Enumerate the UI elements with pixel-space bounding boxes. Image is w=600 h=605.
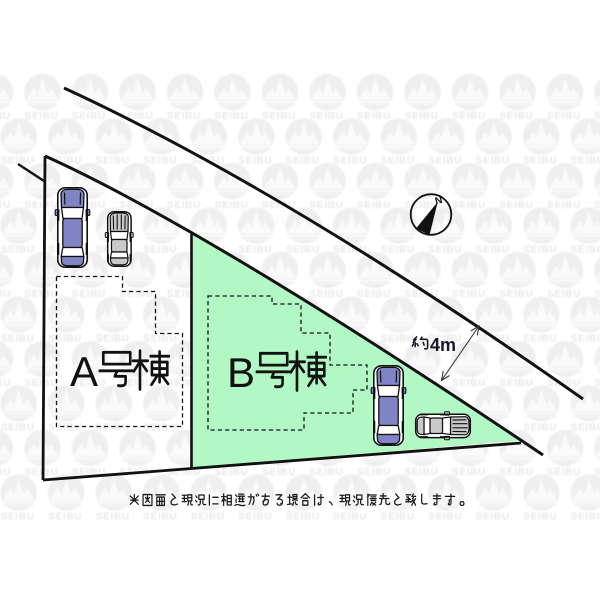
svg-text:B: B [227,349,255,396]
svg-text:4m: 4m [430,335,456,355]
svg-text:A: A [70,348,98,395]
